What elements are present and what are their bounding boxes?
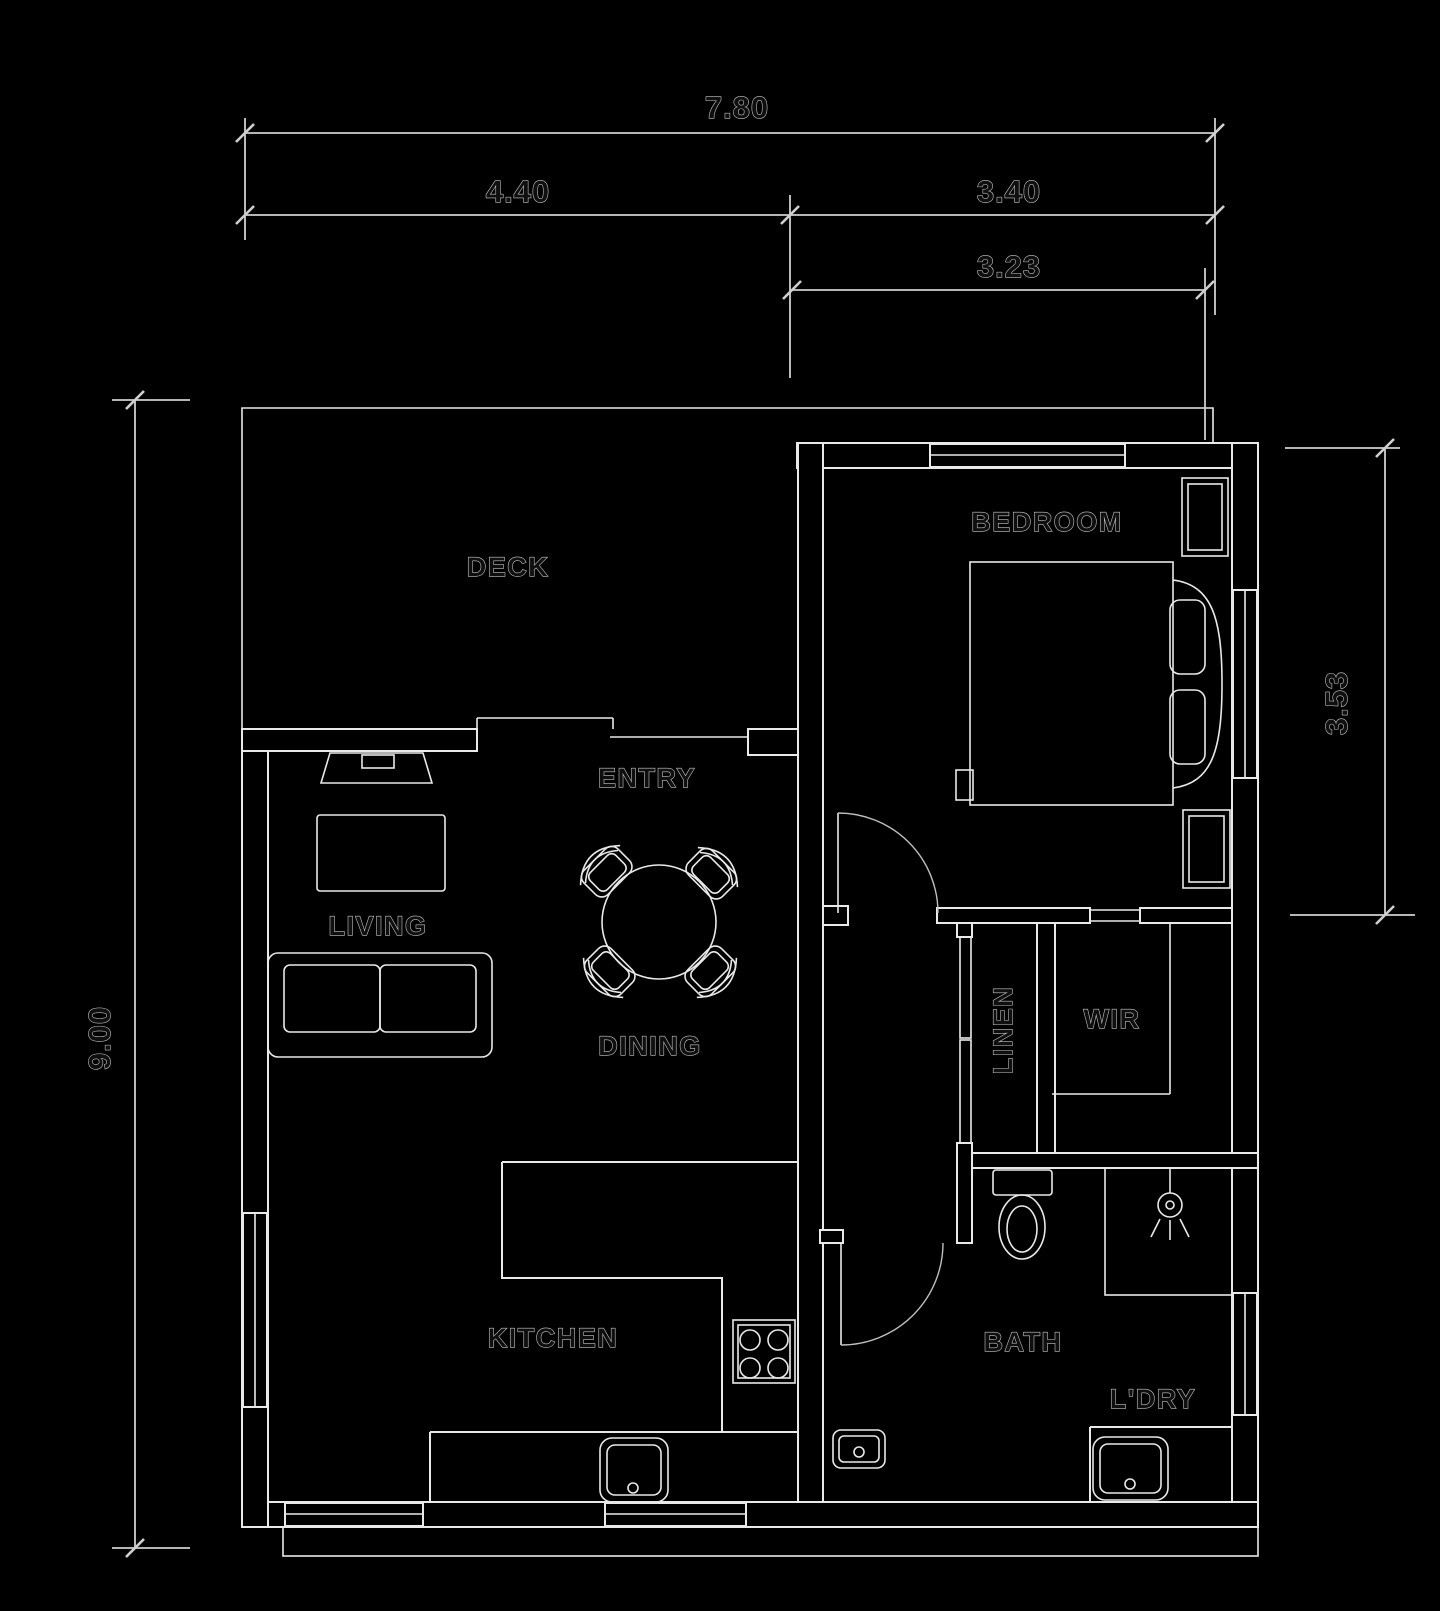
- linen-wall-bottom: [957, 1143, 972, 1243]
- deck-living-wall: [242, 729, 477, 751]
- wir-bath-wall: [972, 1153, 1258, 1168]
- bedroom-label: BEDROOM: [971, 507, 1123, 537]
- deck-label: DECK: [467, 552, 550, 582]
- laundry-label: L'DRY: [1110, 1384, 1196, 1414]
- dim-total-depth-label: 9.00: [82, 1006, 117, 1070]
- bath-door-jamb: [820, 1230, 843, 1243]
- floor-plan-drawing: 7.80 4.40 3.40 3.23 9.00 3.53 DECK BEDRO…: [0, 0, 1440, 1611]
- core-wall: [798, 443, 823, 1502]
- dim-bedroom-internal-label: 3.23: [977, 249, 1041, 284]
- kitchen-west-window: [243, 1213, 267, 1407]
- dim-bedroom-depth-label: 3.53: [1319, 671, 1354, 735]
- south-window-left: [285, 1503, 423, 1526]
- dining-label: DINING: [598, 1031, 702, 1061]
- living-label: LIVING: [328, 911, 427, 941]
- entry-label: ENTRY: [598, 763, 696, 793]
- linen-wir-wall: [1037, 923, 1055, 1155]
- background: [0, 0, 1440, 1611]
- dim-bedroom-width-label: 3.40: [977, 174, 1041, 209]
- bath-east-window: [1233, 1293, 1257, 1415]
- bedroom-south-wall-right: [1140, 908, 1232, 923]
- south-window-right: [605, 1503, 746, 1526]
- bath-label: BATH: [984, 1327, 1063, 1357]
- bedroom-north-window: [930, 444, 1125, 467]
- linen-wall-top: [957, 923, 972, 937]
- entry-pier: [748, 729, 800, 755]
- linen-label: LINEN: [988, 986, 1018, 1075]
- bedroom-door-jamb: [823, 906, 848, 925]
- bedroom-south-wall-left: [937, 908, 1090, 923]
- floor-plan-page: 7.80 4.40 3.40 3.23 9.00 3.53 DECK BEDRO…: [0, 0, 1440, 1611]
- dim-total-width-label: 7.80: [705, 90, 769, 125]
- wir-label: WIR: [1084, 1004, 1141, 1034]
- bedroom-east-window: [1233, 590, 1257, 778]
- kitchen-label: KITCHEN: [488, 1323, 619, 1353]
- dim-living-width-label: 4.40: [486, 174, 550, 209]
